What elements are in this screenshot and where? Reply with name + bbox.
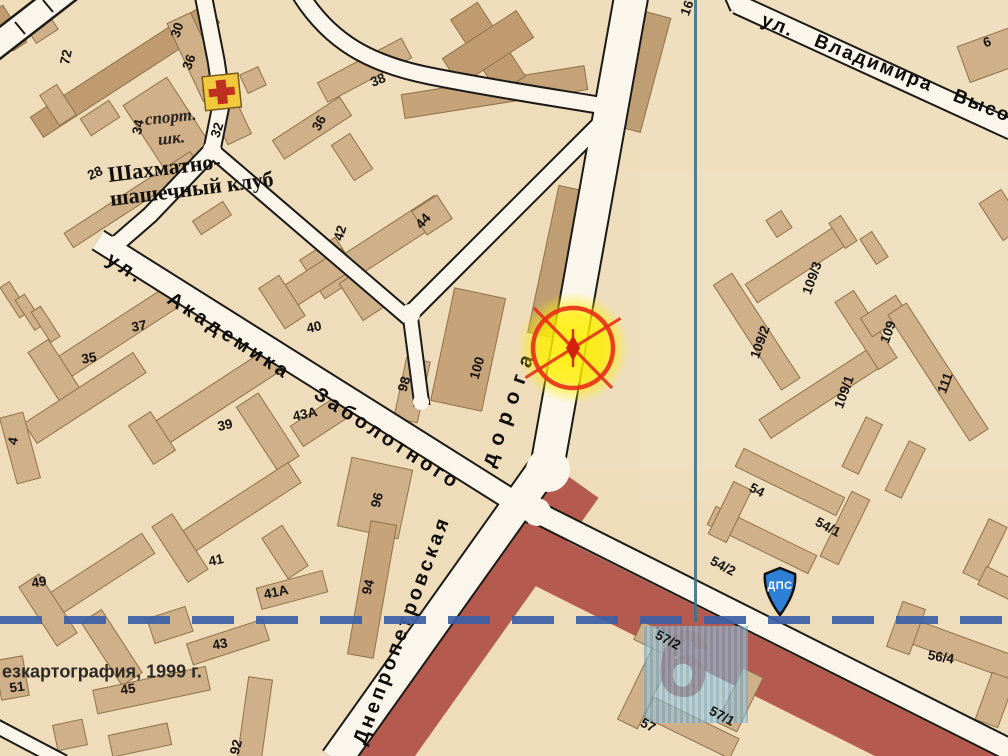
selection-overlay — [644, 626, 748, 723]
grid-dashed-line — [0, 616, 1008, 624]
badge-label: ДПС — [762, 580, 798, 592]
traffic-police-badge: ДПС — [762, 566, 798, 618]
grid-vertical-line — [694, 0, 697, 622]
map-canvas[interactable]: 6 7230363432283638424440373543943A981009… — [0, 0, 1008, 756]
